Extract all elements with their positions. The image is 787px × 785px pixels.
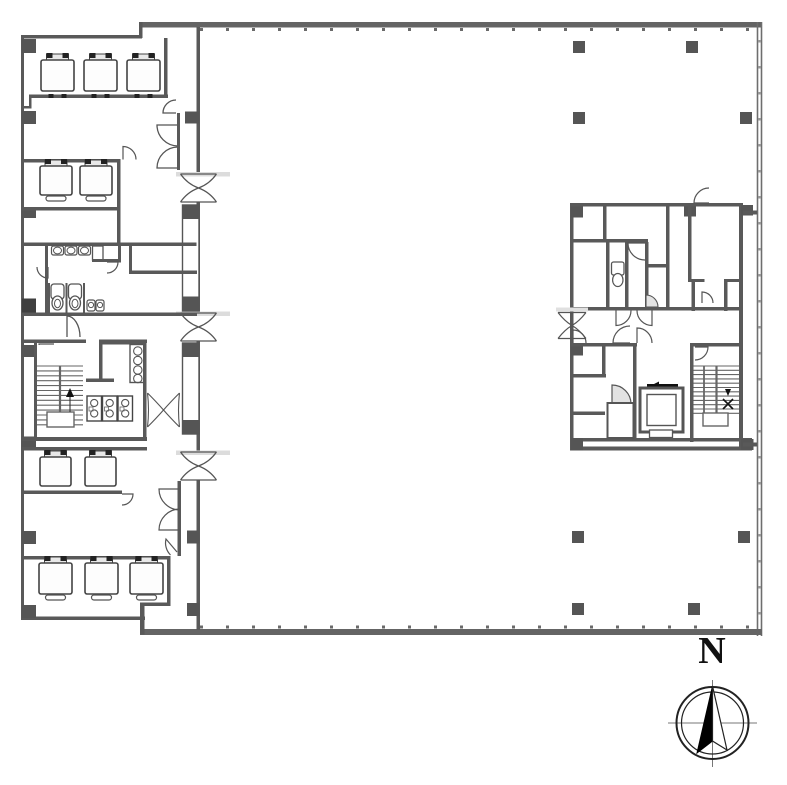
svg-text:N: N (698, 630, 725, 672)
